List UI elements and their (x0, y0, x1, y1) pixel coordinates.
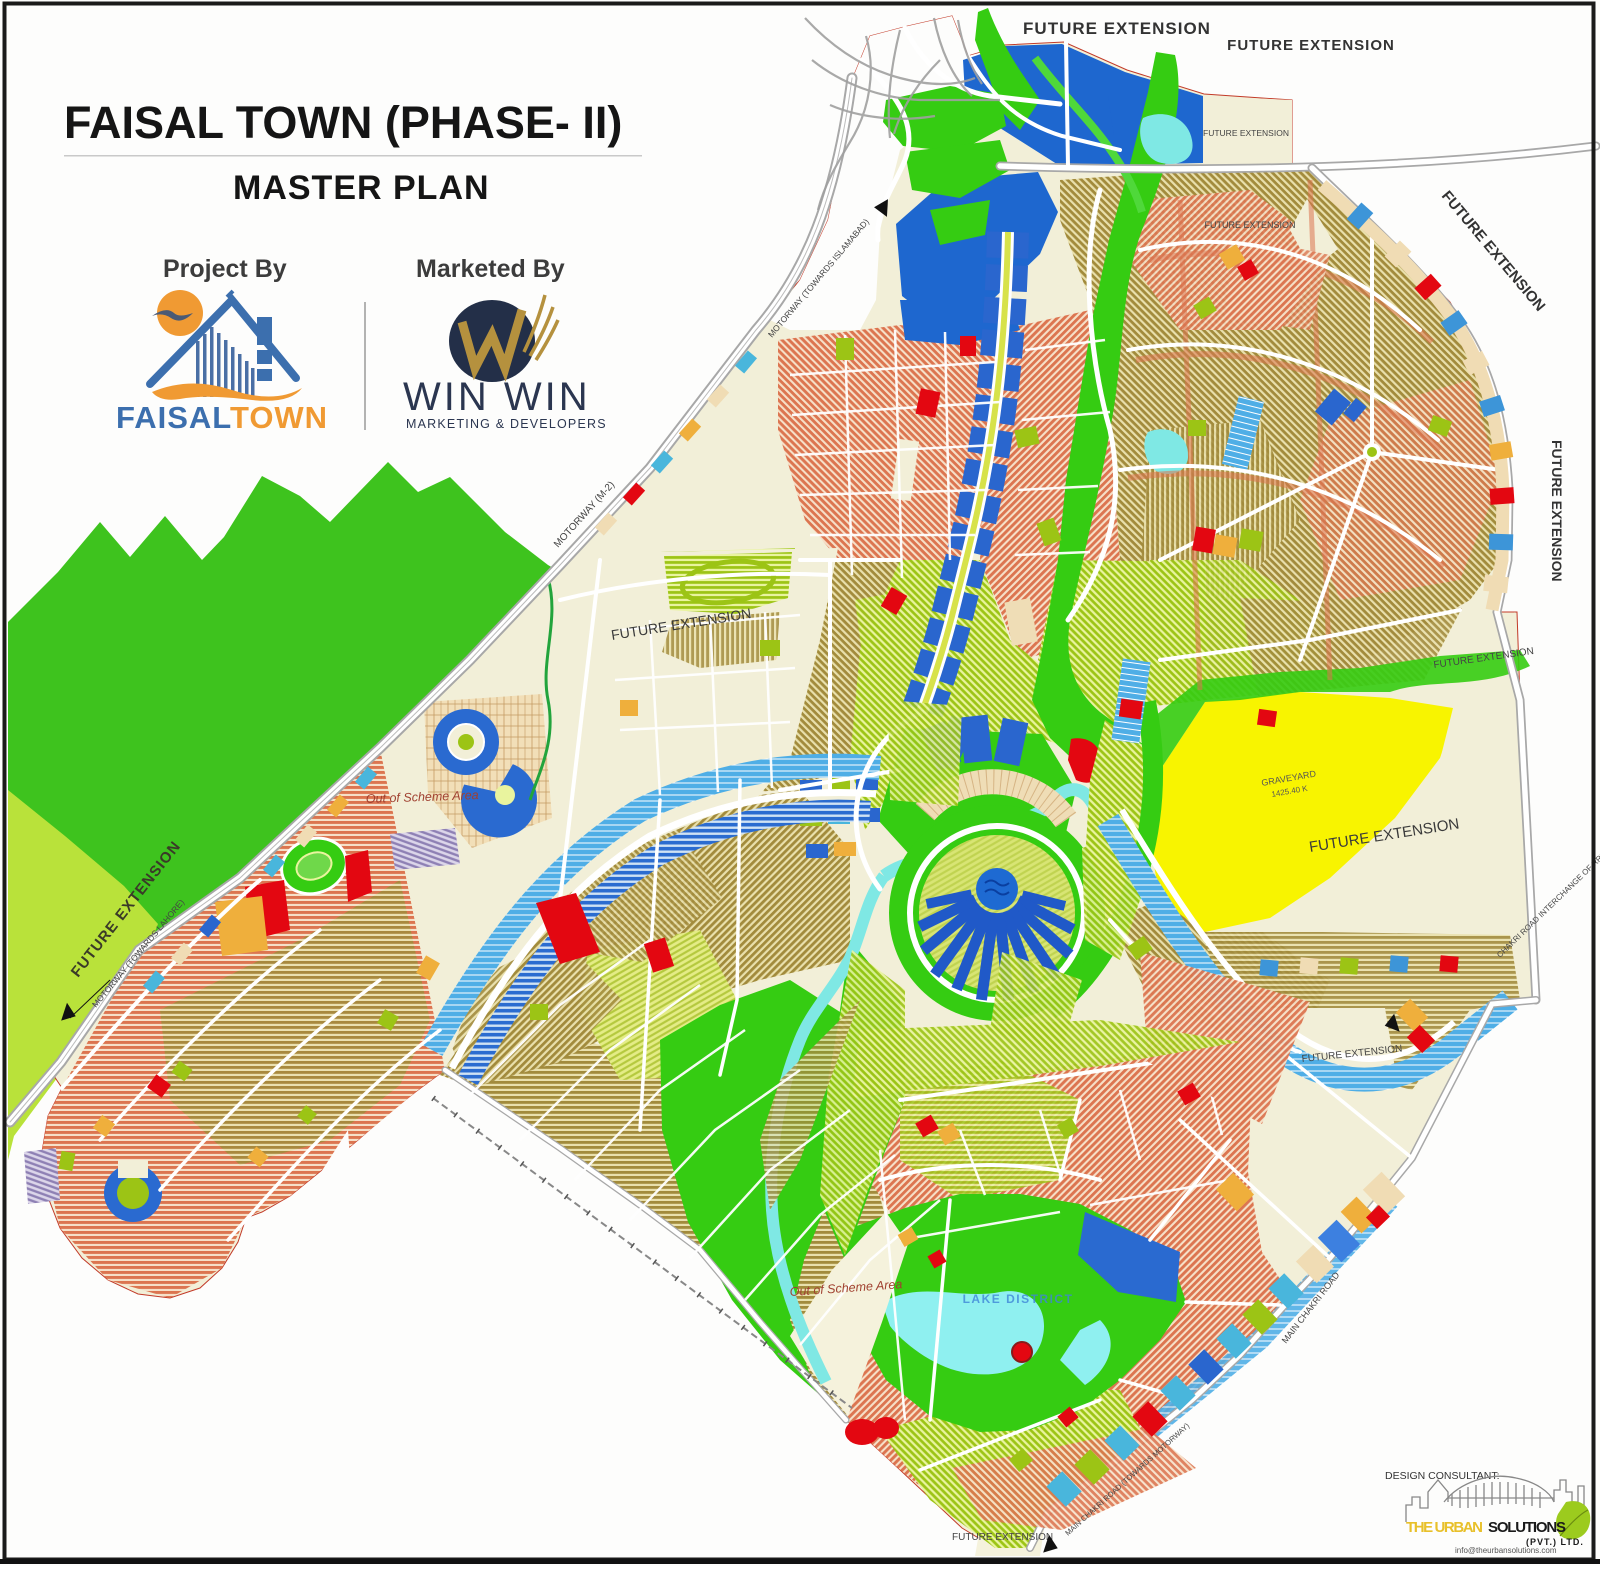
svg-text:DESIGN CONSULTANT:: DESIGN CONSULTANT: (1385, 1470, 1500, 1482)
svg-text:WIN WIN: WIN WIN (403, 375, 591, 419)
svg-text:FUTURE EXTENSION: FUTURE EXTENSION (1023, 19, 1211, 38)
svg-text:FUTURE EXTENSION: FUTURE EXTENSION (1549, 440, 1565, 582)
svg-text:FAISAL TOWN (PHASE- II): FAISAL TOWN (PHASE- II) (64, 97, 622, 148)
svg-text:THE URBAN: THE URBAN (1406, 1519, 1483, 1536)
svg-text:FUTURE EXTENSION: FUTURE EXTENSION (1204, 220, 1295, 230)
svg-text:FAISALTOWN: FAISALTOWN (116, 400, 328, 435)
svg-text:FUTURE EXTENSION: FUTURE EXTENSION (1203, 128, 1289, 138)
svg-text:MARKETING & DEVELOPERS: MARKETING & DEVELOPERS (406, 417, 607, 431)
svg-text:Marketed By: Marketed By (416, 255, 565, 283)
svg-text:MASTER PLAN: MASTER PLAN (233, 169, 490, 207)
svg-text:info@theurbansolutions.com: info@theurbansolutions.com (1455, 1546, 1557, 1555)
svg-text:FUTURE EXTENSION: FUTURE EXTENSION (1227, 37, 1395, 54)
svg-text:Project By: Project By (163, 255, 287, 283)
svg-text:LAKE DISTRICT: LAKE DISTRICT (963, 1292, 1074, 1306)
svg-text:FUTURE EXTENSION: FUTURE EXTENSION (952, 1532, 1053, 1543)
svg-text:SOLUTIONS: SOLUTIONS (1488, 1519, 1566, 1536)
